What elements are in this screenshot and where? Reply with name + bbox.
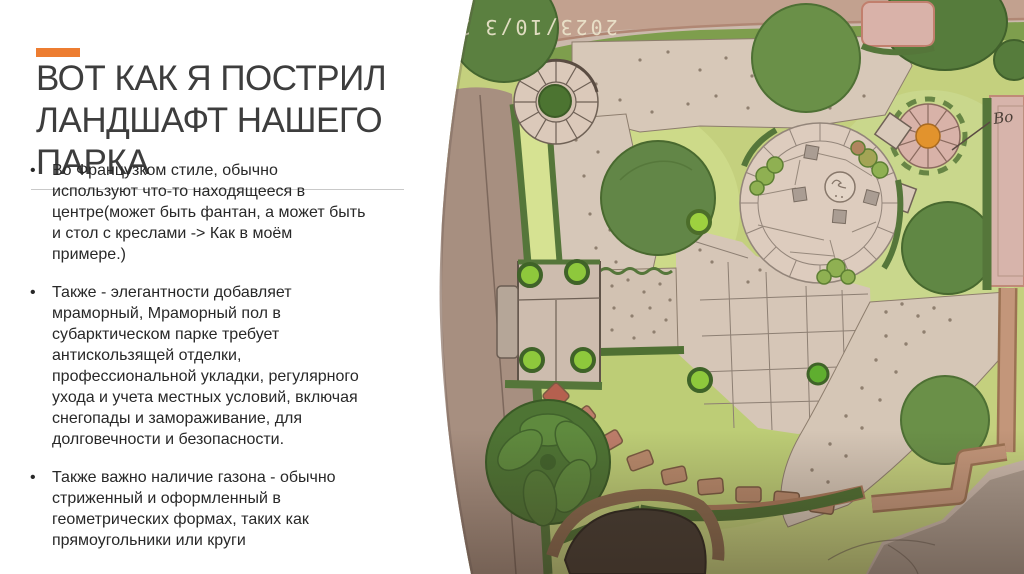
gravel-area-mid [600, 268, 684, 352]
parasol-center [916, 124, 940, 148]
slide-canvas: Во 2023/10/3 2 ВОТ КАК Я ПОСТРИЛ ЛАНДШАФ… [0, 0, 1024, 574]
bullet-list: • Во Французком стиле, обычно используют… [30, 160, 426, 568]
bench [497, 286, 518, 358]
photo-shadow [430, 430, 1024, 574]
bullet-item: • Также - элегантности добавляет мраморн… [30, 282, 426, 450]
bullet-item: • Во Французком стиле, обычно используют… [30, 160, 426, 265]
tree [994, 40, 1024, 80]
bullet-text: Также важно наличие газона - обычно стри… [52, 467, 336, 551]
svg-text:2023/10/3: 2023/10/3 [482, 15, 617, 39]
bullet-item: • Также важно наличие газона - обычно ст… [30, 467, 426, 551]
tree [601, 141, 715, 255]
stool [832, 209, 846, 223]
center-tree [539, 85, 571, 117]
flower-bed [862, 2, 934, 46]
bush [572, 349, 594, 371]
central-plaza [740, 123, 900, 284]
stool [863, 190, 879, 206]
bush [688, 211, 710, 233]
bullet-marker: • [30, 160, 52, 265]
bush [566, 261, 588, 283]
bullet-text: Также - элегантности добавляет мраморный… [52, 282, 359, 450]
tree [902, 202, 994, 294]
round-table [825, 172, 855, 202]
bush [519, 264, 541, 286]
bush [689, 369, 711, 391]
bullet-marker: • [30, 282, 52, 450]
bush [521, 349, 543, 371]
hedge [600, 350, 684, 352]
accent-bar [36, 48, 80, 57]
tree [752, 4, 860, 112]
bullet-marker: • [30, 467, 52, 551]
stool [792, 187, 807, 202]
bush [808, 364, 828, 384]
stool [804, 145, 819, 160]
bullet-text: Во Французком стиле, обычно используют ч… [52, 160, 365, 265]
annotation-label: Во [991, 107, 1014, 128]
